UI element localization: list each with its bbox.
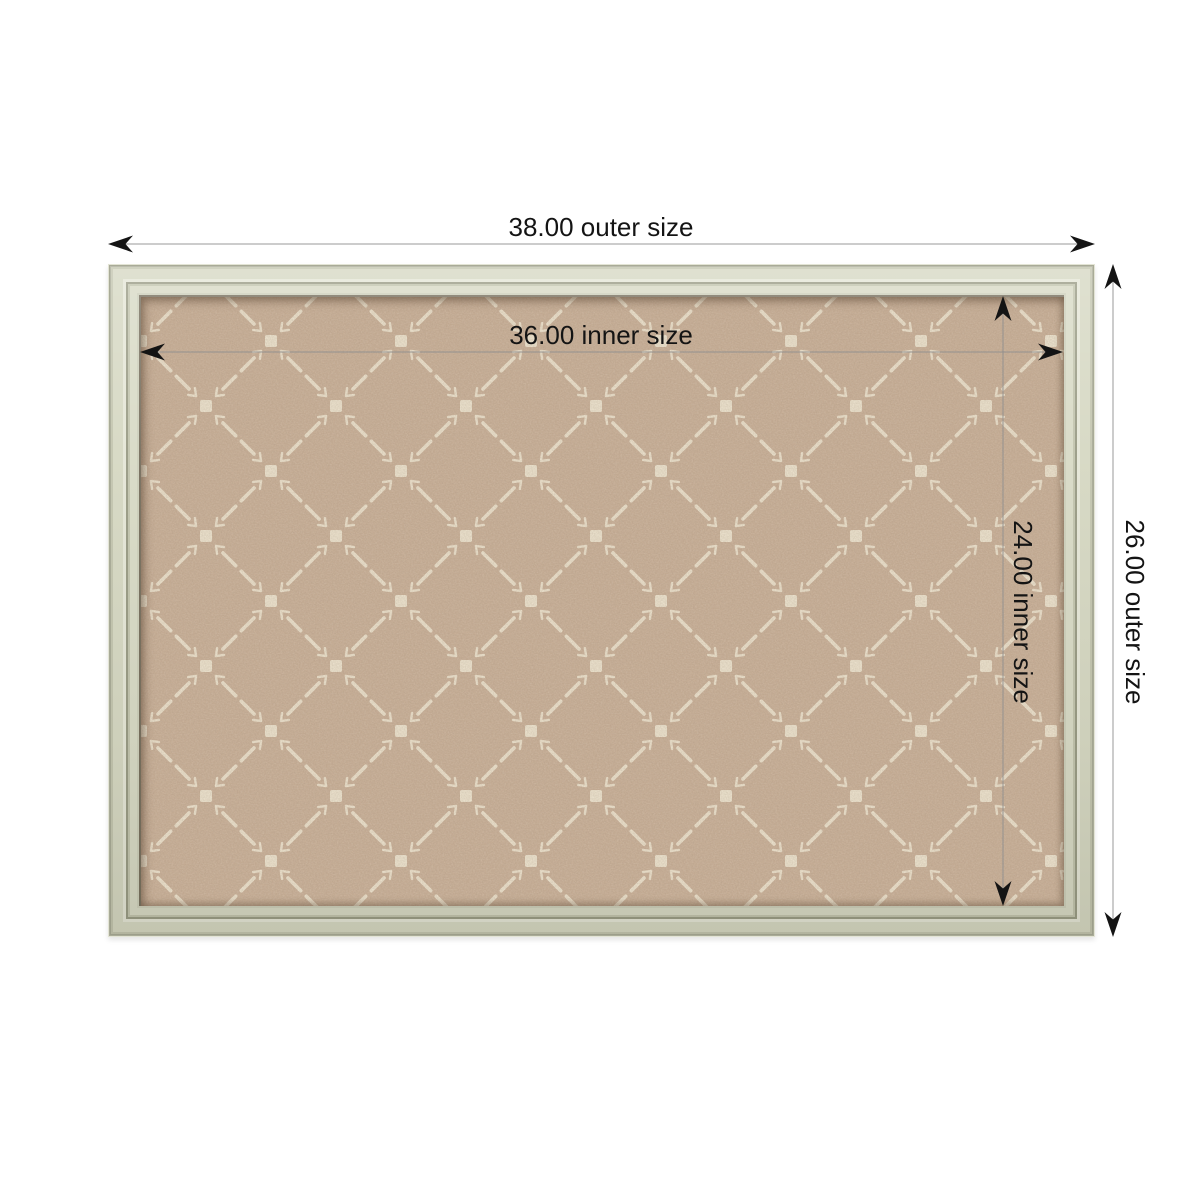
arrow-up-icon (1105, 264, 1122, 289)
fabric-surface (141, 297, 1064, 906)
fabric-pattern (141, 297, 1064, 906)
arrow-right-icon (1070, 236, 1095, 253)
arrow-down-icon (1105, 912, 1122, 937)
product-dimension-diagram: 38.00 outer size 36.00 inner size 24.00 … (0, 0, 1200, 1200)
dimension-label-outer-width: 38.00 outer size (508, 212, 693, 242)
dimension-label-outer-height: 26.00 outer size (1120, 519, 1150, 704)
framed-board (108, 264, 1095, 937)
arrow-left-icon (108, 236, 133, 253)
dimension-outer-width: 38.00 outer size (108, 212, 1095, 253)
dimension-outer-height: 26.00 outer size (1105, 264, 1151, 937)
